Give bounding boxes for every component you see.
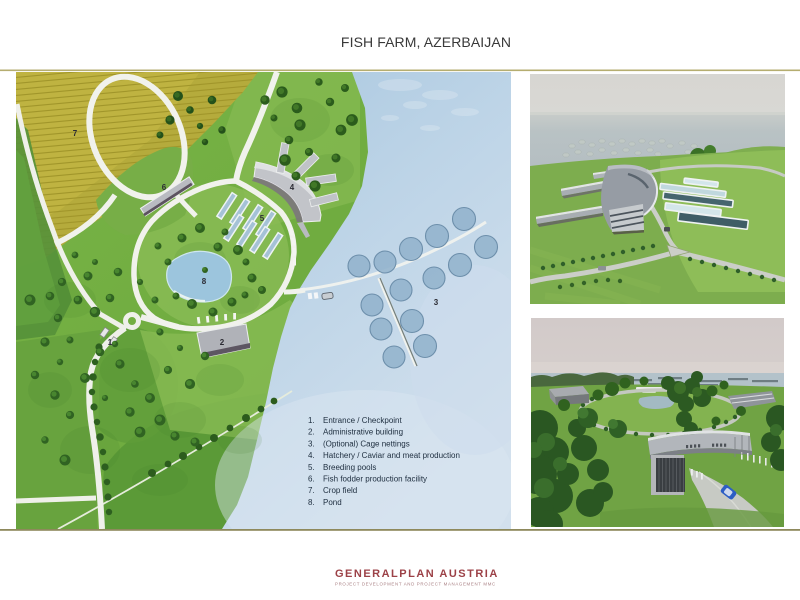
- svg-text:Administrative building: Administrative building: [323, 428, 403, 437]
- svg-text:6.: 6.: [308, 475, 315, 484]
- svg-text:2.: 2.: [308, 428, 315, 437]
- svg-text:4.: 4.: [308, 451, 315, 460]
- svg-text:7.: 7.: [308, 486, 315, 495]
- svg-text:5.: 5.: [308, 463, 315, 472]
- svg-text:GENERALPLAN AUSTRIA: GENERALPLAN AUSTRIA: [335, 568, 499, 580]
- svg-text:1.: 1.: [308, 416, 315, 425]
- svg-text:3: 3: [434, 298, 439, 307]
- svg-text:Crop field: Crop field: [323, 486, 357, 495]
- svg-text:Entrance / Checkpoint: Entrance / Checkpoint: [323, 416, 402, 425]
- svg-text:3.: 3.: [308, 439, 315, 448]
- svg-text:FISH FARM, AZERBAIJAN: FISH FARM, AZERBAIJAN: [341, 34, 511, 50]
- svg-text:1: 1: [108, 338, 113, 347]
- svg-text:8: 8: [202, 277, 207, 286]
- svg-text:PROJECT DEVELOPMENT AND PROJEC: PROJECT DEVELOPMENT AND PROJECT MANAGEME…: [335, 582, 496, 587]
- svg-text:4: 4: [290, 183, 295, 192]
- svg-text:8.: 8.: [308, 498, 315, 507]
- svg-text:6: 6: [162, 183, 167, 192]
- svg-text:7: 7: [73, 129, 78, 138]
- svg-text:5: 5: [260, 214, 265, 223]
- svg-text:Breeding pools: Breeding pools: [323, 463, 376, 472]
- svg-text:Hatchery / Caviar and meat pro: Hatchery / Caviar and meat production: [323, 451, 460, 460]
- svg-text:Fish fodder production facilit: Fish fodder production facility: [323, 475, 427, 484]
- svg-text:Pond: Pond: [323, 498, 342, 507]
- svg-text:2: 2: [220, 338, 225, 347]
- svg-text:(Optional) Cage nettings: (Optional) Cage nettings: [323, 439, 410, 448]
